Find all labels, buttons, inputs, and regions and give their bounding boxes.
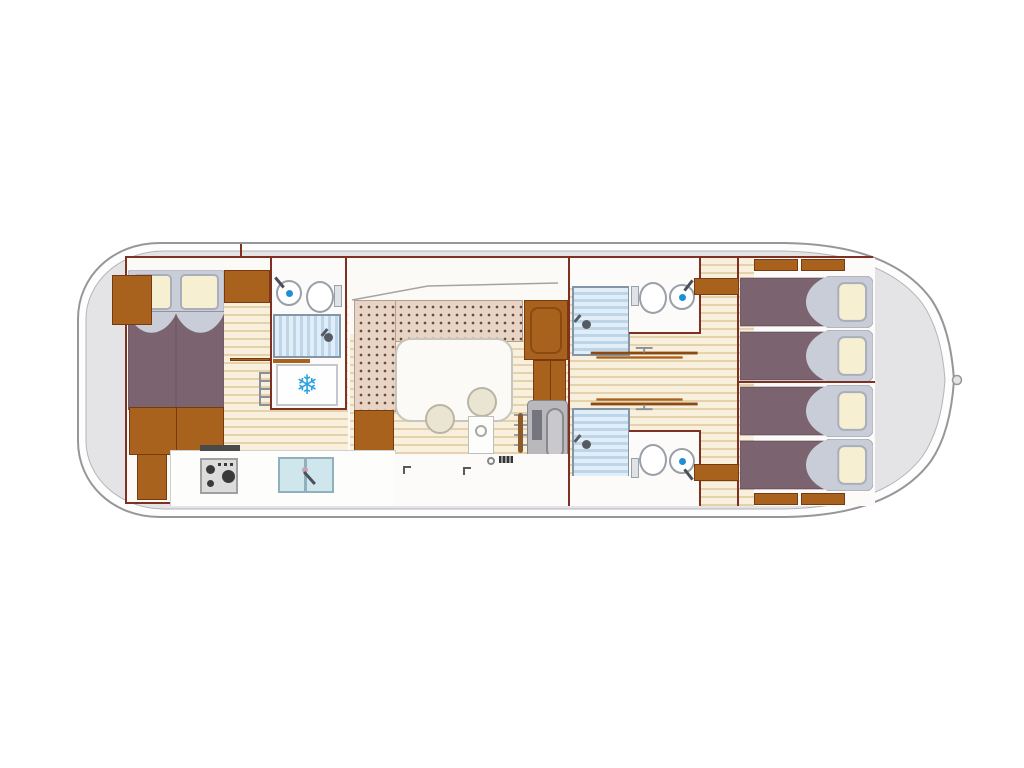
burner-small	[207, 480, 214, 487]
snowflake-icon: ❄	[296, 372, 319, 399]
deck-filler-cap	[487, 457, 495, 465]
saloon-table	[395, 338, 513, 422]
cabin-divider-wall	[739, 381, 875, 383]
steering-wheel	[518, 413, 523, 453]
table-pedestal	[468, 416, 494, 454]
towel-rail	[230, 358, 270, 361]
cabinet-top-left	[570, 258, 631, 288]
burner-medium	[206, 465, 215, 474]
console-door	[546, 408, 564, 459]
stove-hood	[200, 445, 240, 451]
showerhead-arm	[573, 434, 581, 443]
bow-locker	[801, 259, 845, 271]
stool-1	[425, 404, 455, 434]
door-frame-mark	[403, 466, 411, 474]
bow-locker	[754, 259, 798, 271]
boathook	[590, 346, 704, 361]
door-frame-mark	[463, 467, 471, 475]
galley-counter	[170, 450, 396, 506]
bathroom-starboard	[629, 430, 699, 506]
shower-aft	[273, 314, 341, 358]
single-bed-2	[740, 330, 873, 382]
mid-section	[568, 258, 739, 506]
grab-rail	[273, 359, 310, 363]
cabinet-bottom-left	[570, 476, 631, 506]
toilet-tank	[631, 458, 639, 478]
bow-cabins	[739, 258, 875, 506]
stove	[200, 458, 238, 494]
faucet-icon	[683, 279, 693, 291]
washbasin	[276, 280, 302, 306]
bow-cleat	[953, 376, 962, 385]
interior-area: ❄	[125, 256, 873, 504]
faucet-icon	[683, 468, 693, 480]
single-bed-3	[740, 385, 873, 437]
sink-bowl-left	[278, 457, 306, 493]
toilet-tank	[334, 285, 342, 307]
bathroom-port	[629, 258, 699, 334]
storage-bottom-right	[694, 464, 739, 481]
instrument-panel	[532, 410, 542, 440]
single-bed-1	[740, 276, 873, 328]
toilet	[639, 444, 667, 476]
stool-2	[467, 387, 497, 417]
washbasin	[669, 284, 695, 310]
aft-bathroom: ❄	[270, 258, 347, 410]
burner-large	[222, 470, 235, 483]
cabinet-door-split	[550, 361, 551, 405]
washbasin	[669, 448, 695, 474]
single-bed-4	[740, 439, 873, 491]
bow-locker	[801, 493, 845, 505]
galley-sink	[278, 457, 334, 493]
wardrobe-mid	[524, 300, 568, 360]
cockpit-entry	[394, 454, 568, 506]
wardrobe-door	[530, 307, 562, 354]
cabinet-under-sofa	[354, 410, 394, 454]
drain-dot	[286, 290, 293, 297]
bow-locker	[754, 493, 798, 505]
drain-dot	[679, 458, 686, 465]
wall	[699, 258, 701, 334]
toilet	[639, 282, 667, 314]
faucet-icon	[274, 277, 285, 289]
showerhead-arm	[573, 314, 581, 323]
showerhead-icon	[582, 320, 591, 329]
toilet-tank	[631, 286, 639, 306]
floor-plan-canvas: ❄	[0, 0, 1024, 768]
refrigerator: ❄	[276, 364, 338, 406]
stove-knobs	[218, 463, 234, 466]
vent-grill	[499, 456, 513, 463]
showerhead-icon	[582, 440, 591, 449]
toilet	[306, 281, 334, 313]
cabinet-aft-lower	[137, 454, 167, 500]
drain-dot	[679, 294, 686, 301]
cabinet-door-split	[176, 408, 177, 454]
pedestal-base	[475, 425, 487, 437]
sofa-left-bench	[354, 300, 396, 412]
wardrobe-aft	[224, 270, 270, 303]
showerhead-icon	[324, 333, 333, 342]
shower-starboard	[572, 408, 630, 478]
nightstand	[112, 275, 152, 325]
storage-top-right	[694, 278, 739, 295]
